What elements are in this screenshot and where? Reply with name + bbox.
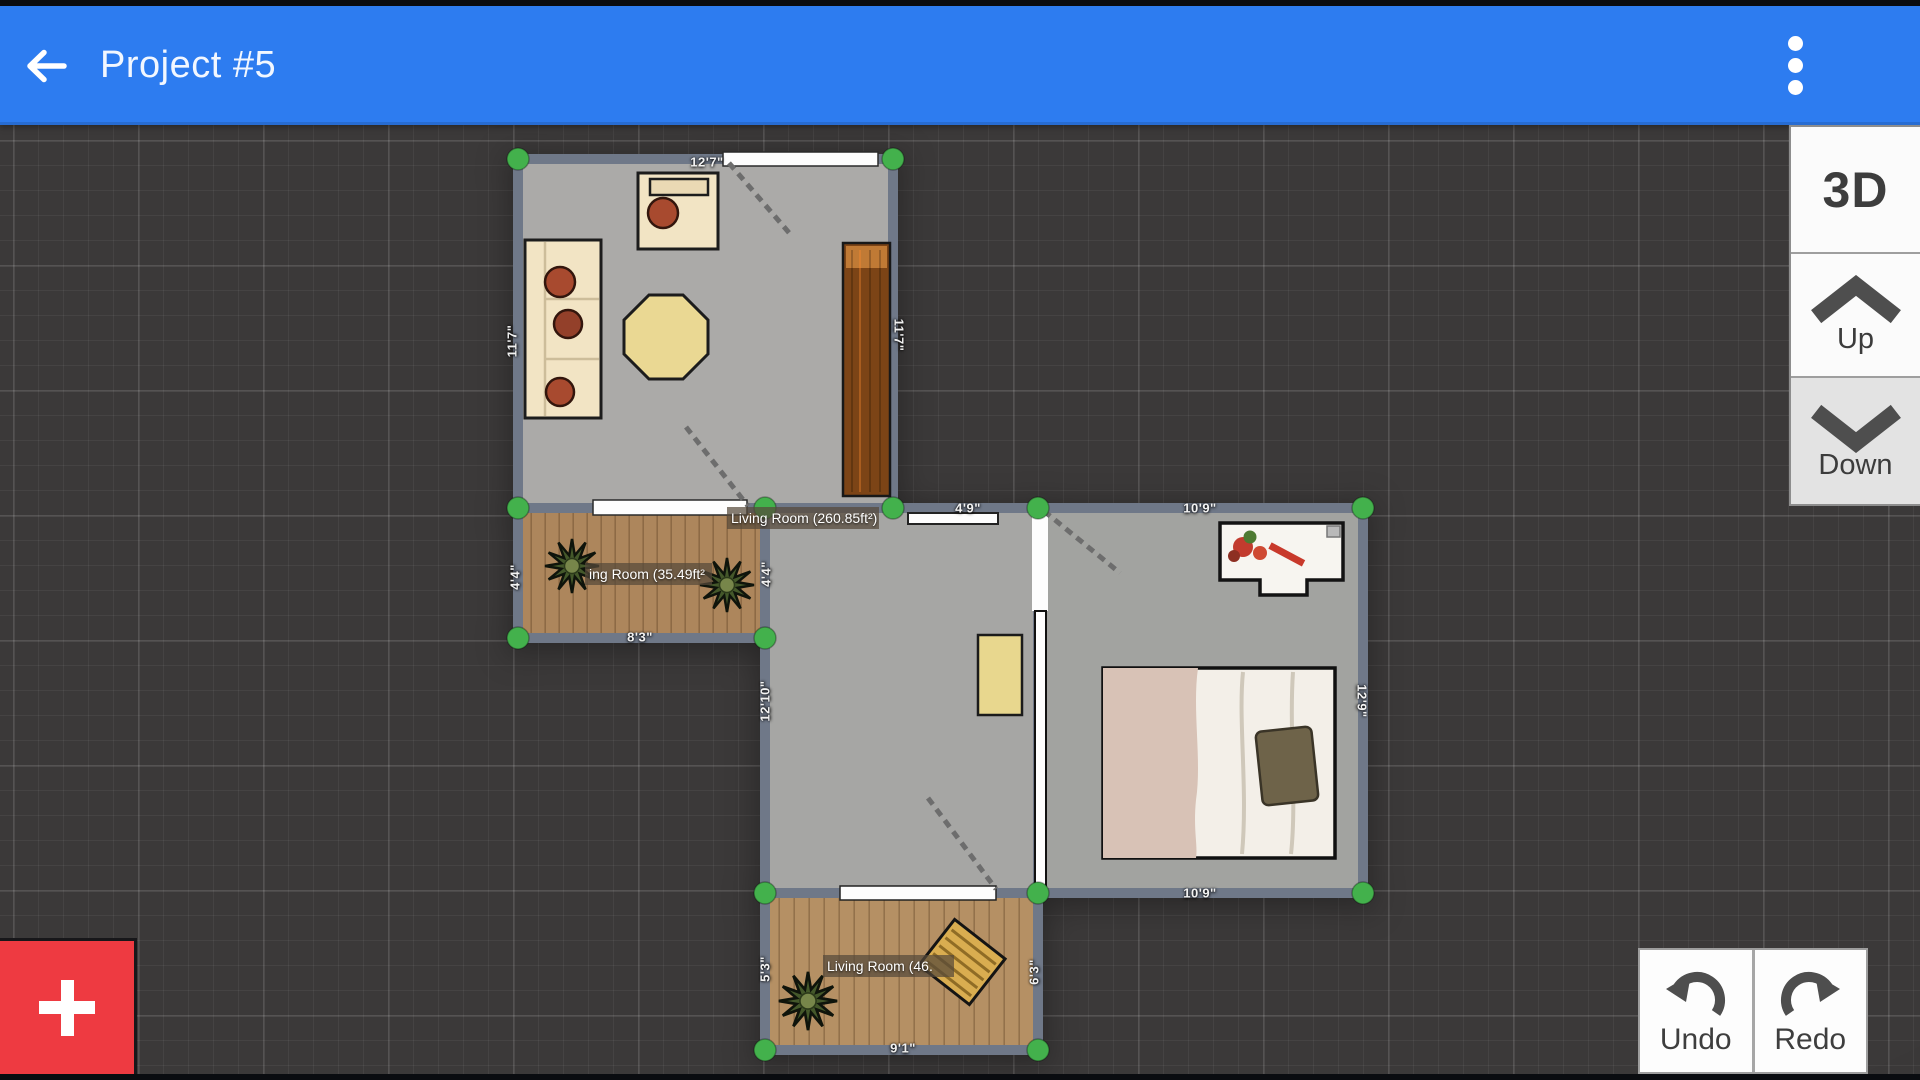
dim-label-living-small-left: 4'4" bbox=[508, 564, 523, 590]
plus-icon bbox=[39, 980, 95, 1036]
room-name-living-small: ing Room (35.49ft² bbox=[585, 563, 712, 585]
view-controls-panel: 3D Up Down bbox=[1789, 125, 1920, 506]
decor-plant bbox=[1244, 531, 1257, 544]
sofa-pillow bbox=[545, 267, 575, 297]
dim-label-bedroom-bottom: 10'9" bbox=[1183, 886, 1216, 901]
arrow-redo-icon bbox=[1777, 965, 1843, 1021]
corner-handle[interactable] bbox=[1027, 882, 1049, 904]
dim-label-hall-left: 12'10" bbox=[758, 680, 773, 721]
bed[interactable] bbox=[1103, 668, 1335, 858]
window[interactable] bbox=[593, 500, 747, 515]
dim-label-bedroom-right: 12'9" bbox=[1355, 684, 1370, 717]
floor-plan-svg bbox=[0, 0, 1920, 1080]
window[interactable] bbox=[908, 513, 998, 524]
sofa[interactable] bbox=[525, 240, 601, 418]
floor-up-label: Up bbox=[1837, 323, 1874, 356]
sofa-pillow bbox=[554, 310, 582, 338]
dim-label-bedroom-top: 10'9" bbox=[1183, 501, 1216, 516]
dim-label-hall-top: 4'9" bbox=[955, 501, 981, 516]
dim-label-living-main-top: 12'7" bbox=[690, 155, 723, 170]
status-bar bbox=[0, 0, 1920, 6]
decor-flowers bbox=[1253, 546, 1267, 560]
add-item-button[interactable] bbox=[0, 938, 137, 1074]
app-stage: 12'7" 11'7" 11'7" 4'4" 4'4" 8'3" 4'9" 12… bbox=[0, 0, 1920, 1080]
corner-handle[interactable] bbox=[1352, 497, 1374, 519]
dim-label-living-bottom-left: 5'3" bbox=[758, 956, 773, 982]
corner-handle[interactable] bbox=[507, 148, 529, 170]
dim-label-living-main-left: 11'7" bbox=[505, 325, 520, 358]
dim-label-living-small-right: 4'4" bbox=[759, 561, 774, 587]
room-name-living-main: Living Room (260.85ft²) bbox=[727, 507, 879, 529]
bed-blanket bbox=[1103, 668, 1198, 858]
dim-label-living-small-bottom: 8'3" bbox=[627, 630, 653, 645]
coffee-table[interactable] bbox=[624, 295, 708, 379]
redo-button[interactable]: Redo bbox=[1752, 950, 1867, 1072]
corner-handle[interactable] bbox=[507, 497, 529, 519]
room-name-living-bottom: Living Room (46. bbox=[823, 955, 954, 977]
corner-handle[interactable] bbox=[754, 882, 776, 904]
corner-handle[interactable] bbox=[1027, 1039, 1049, 1061]
kebab-dot bbox=[1788, 36, 1803, 51]
armchair[interactable] bbox=[638, 173, 718, 249]
corner-handle[interactable] bbox=[754, 627, 776, 649]
chevron-up-icon bbox=[1801, 275, 1911, 327]
kebab-dot bbox=[1788, 80, 1803, 95]
nav-bar bbox=[0, 1074, 1920, 1080]
undo-button[interactable]: Undo bbox=[1640, 950, 1752, 1072]
corner-handle[interactable] bbox=[1352, 882, 1374, 904]
corner-handle[interactable] bbox=[882, 497, 904, 519]
view-3d-button[interactable]: 3D bbox=[1791, 127, 1920, 254]
wardrobe[interactable] bbox=[843, 243, 890, 496]
floor-plan[interactable]: 12'7" 11'7" 11'7" 4'4" 4'4" 8'3" 4'9" 12… bbox=[0, 0, 1920, 1080]
dim-label-living-main-right: 11'7" bbox=[892, 319, 907, 352]
dim-label-living-bottom-right: 6'3" bbox=[1027, 959, 1042, 985]
armchair-pillow bbox=[648, 198, 678, 228]
bed-pillow bbox=[1255, 726, 1318, 805]
window[interactable] bbox=[723, 152, 878, 166]
corner-handle[interactable] bbox=[1027, 497, 1049, 519]
rug[interactable] bbox=[978, 635, 1022, 715]
floor-down-button[interactable]: Down bbox=[1791, 378, 1920, 504]
arrow-undo-icon bbox=[1663, 965, 1729, 1021]
floor-up-button[interactable]: Up bbox=[1791, 254, 1920, 378]
dim-label-living-bottom-bottom: 9'1" bbox=[890, 1041, 916, 1056]
rooms-group bbox=[518, 159, 1363, 1050]
overflow-menu-button[interactable] bbox=[1768, 6, 1822, 125]
door-panel[interactable] bbox=[1035, 611, 1046, 889]
app-header: Project #5 bbox=[0, 6, 1920, 125]
sofa-pillow bbox=[546, 378, 574, 406]
corner-handle[interactable] bbox=[882, 148, 904, 170]
kebab-dot bbox=[1788, 58, 1803, 73]
chevron-down-icon bbox=[1801, 401, 1911, 453]
arrow-left-icon bbox=[22, 47, 68, 85]
corner-handle[interactable] bbox=[754, 1039, 776, 1061]
undo-label: Undo bbox=[1660, 1023, 1732, 1057]
back-button[interactable] bbox=[12, 31, 78, 101]
door-opening[interactable] bbox=[840, 886, 996, 900]
page-title: Project #5 bbox=[100, 44, 276, 87]
floor-down-label: Down bbox=[1818, 449, 1892, 482]
corner-handle[interactable] bbox=[507, 627, 529, 649]
decor-flowers bbox=[1228, 550, 1240, 562]
redo-label: Redo bbox=[1774, 1023, 1846, 1057]
history-panel: Undo Redo bbox=[1638, 948, 1868, 1074]
